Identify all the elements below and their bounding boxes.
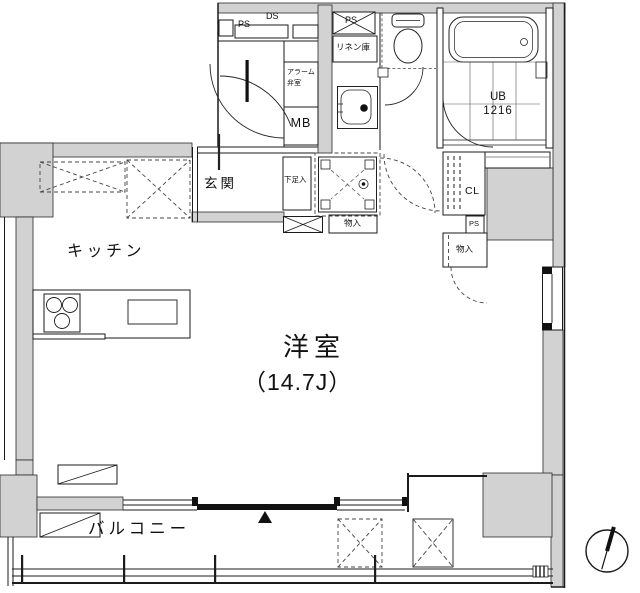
eps-box bbox=[219, 20, 233, 36]
entrance-door-leaf bbox=[246, 60, 249, 102]
closet-label: CL bbox=[465, 186, 479, 197]
storage-closet-door-arc bbox=[451, 267, 487, 303]
bathtub bbox=[449, 17, 538, 62]
wall-right-upper bbox=[553, 3, 565, 267]
wall-entry-south bbox=[192, 212, 284, 222]
meter-box-label: MB bbox=[284, 117, 318, 130]
wall-corner-se bbox=[483, 473, 552, 537]
linen-closet-label: リネン庫 bbox=[336, 43, 370, 52]
unit-bath-size-label: 1216 bbox=[478, 106, 518, 118]
floor-plan: DS PS PS リネン庫 アラーム 弁室 MB UB 1216 玄関 下足入 … bbox=[0, 0, 640, 593]
bathtub-inner bbox=[455, 22, 533, 58]
alarm-valve-room-label: アラーム 弁室 bbox=[287, 67, 315, 89]
kitchen-storage-dashed bbox=[40, 160, 190, 218]
unit-bath-label: UB bbox=[478, 92, 518, 104]
entrance-label: 玄関 bbox=[204, 177, 237, 191]
wall-block-ne bbox=[487, 168, 553, 240]
bathtub-drain bbox=[521, 39, 528, 46]
wall-bath-left bbox=[437, 8, 443, 148]
floor-plan-geometry bbox=[0, 0, 640, 593]
closet-box bbox=[443, 152, 485, 215]
toilet-door-arc bbox=[385, 67, 423, 105]
balcony-threshold bbox=[37, 497, 123, 510]
east-window bbox=[543, 267, 563, 330]
wall-left bbox=[16, 217, 33, 460]
balcony-hatches bbox=[338, 519, 453, 567]
counter-edge bbox=[33, 334, 105, 339]
wall-corner-sw bbox=[0, 475, 37, 537]
pipe-space-duct-label: PS bbox=[238, 20, 250, 29]
wall-right-mid bbox=[543, 330, 563, 475]
wall-shaft-top bbox=[318, 5, 332, 153]
paper-holder bbox=[378, 68, 388, 77]
washbasin-faucet bbox=[360, 104, 368, 112]
wall-corner-nw bbox=[0, 143, 53, 217]
shower-unit bbox=[536, 62, 547, 78]
window-sash bbox=[197, 504, 337, 510]
wall-right-lower bbox=[551, 475, 563, 587]
storage-hall-label: 物入 bbox=[344, 219, 361, 228]
center-marker-triangle bbox=[258, 511, 272, 523]
north-indicator bbox=[586, 527, 628, 572]
balcony-label: バルコニー bbox=[88, 521, 190, 538]
balcony-railing bbox=[12, 555, 553, 583]
entrance-door-arc bbox=[220, 76, 291, 126]
main-room-label: 洋室 bbox=[283, 334, 345, 360]
stove bbox=[44, 294, 80, 332]
duct-space-label: DS bbox=[266, 12, 279, 21]
closet-shelf bbox=[485, 152, 550, 168]
shoe-box-label: 下足入 bbox=[284, 176, 307, 184]
storage-closet-label: 物入 bbox=[456, 245, 473, 254]
unit-bath bbox=[443, 17, 547, 147]
toilet-room bbox=[378, 13, 436, 105]
wall-left-lower bbox=[16, 460, 33, 475]
kitchen-label: キッチン bbox=[67, 244, 145, 260]
ps-closet-label: PS bbox=[469, 220, 479, 228]
pipe-shaft-label: PS bbox=[345, 16, 357, 25]
toilet-bowl bbox=[394, 29, 422, 63]
drain-grille bbox=[533, 566, 548, 577]
main-room-size-label: （14.7J） bbox=[243, 371, 352, 394]
duct-box-2 bbox=[293, 25, 318, 38]
kitchen-fixtures bbox=[33, 290, 190, 339]
